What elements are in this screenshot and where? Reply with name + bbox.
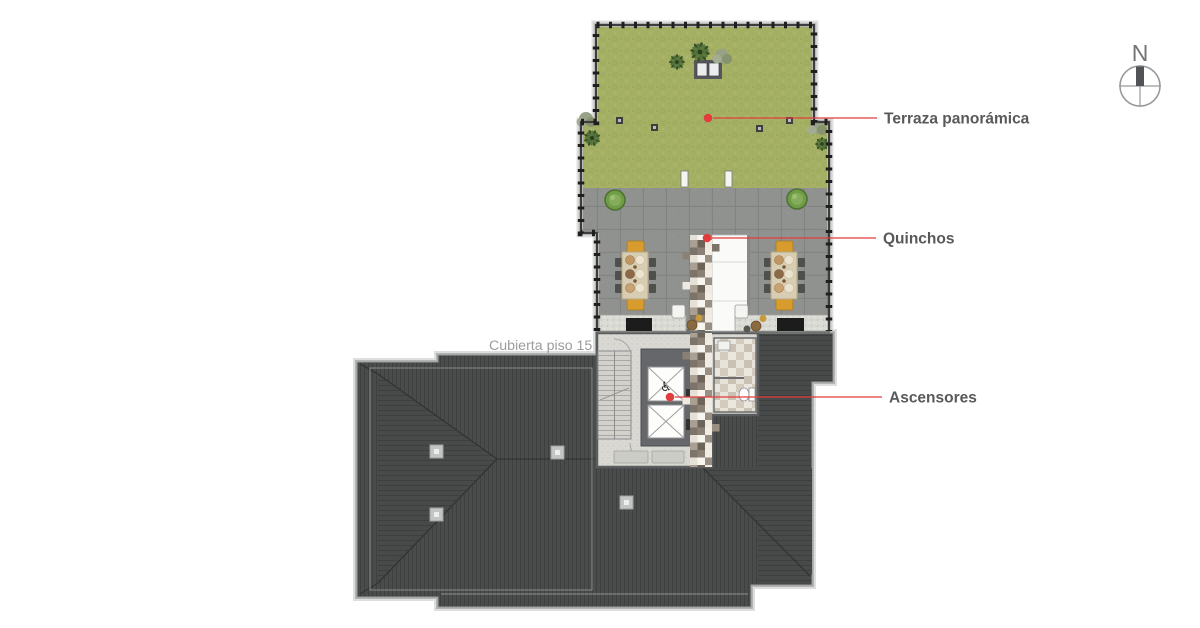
callout-label-quinchos: Quinchos (883, 231, 954, 248)
plate (626, 256, 635, 265)
plate (775, 270, 784, 279)
chair (649, 284, 656, 293)
stool (744, 326, 751, 333)
north-compass-icon: N (1119, 40, 1161, 107)
elevator-car (648, 405, 684, 438)
round-tree-icon (605, 190, 625, 210)
bench (776, 298, 793, 310)
plate (775, 256, 784, 265)
light-fixture (651, 124, 658, 131)
light-fixture (756, 125, 763, 132)
chair (615, 284, 622, 293)
bench (627, 241, 644, 253)
stool (696, 315, 703, 322)
chair (615, 271, 622, 280)
chair (764, 258, 771, 267)
table-item (782, 265, 786, 269)
plate (785, 284, 794, 293)
core-bench (652, 451, 684, 463)
staircase (598, 351, 631, 439)
chair (764, 284, 771, 293)
floor-marker (681, 171, 688, 187)
plate (626, 270, 635, 279)
sink (672, 305, 685, 318)
mosaic-wall-core (690, 333, 712, 467)
plate (785, 256, 794, 265)
terrace-block (577, 25, 831, 333)
plate (636, 270, 645, 279)
callout-dot (666, 393, 675, 402)
mosaic-tile (683, 252, 691, 260)
mosaic-tile (683, 282, 691, 290)
floor-plan-page: ♿ (0, 0, 1200, 628)
toilet (739, 388, 755, 401)
plate (785, 270, 794, 279)
sink (735, 305, 748, 318)
light-fixture (616, 117, 623, 124)
compass-needle (1136, 67, 1144, 87)
callout-label-ascensores: Ascensores (889, 390, 977, 407)
chair (798, 271, 805, 280)
stool (760, 315, 767, 322)
chair (615, 258, 622, 267)
stool (687, 320, 697, 330)
palm-tree-icon (669, 54, 685, 70)
grass-area-wide (583, 122, 827, 188)
table-item (633, 265, 637, 269)
chair (798, 284, 805, 293)
chair (649, 258, 656, 267)
core-bench (614, 451, 648, 463)
callout-dot (703, 234, 712, 243)
roof-vent (430, 508, 443, 521)
floor-marker (725, 171, 732, 187)
roof-vent (430, 445, 443, 458)
chair (649, 271, 656, 280)
roof-vent (620, 496, 633, 509)
chair (764, 271, 771, 280)
plate (626, 284, 635, 293)
chair (798, 258, 805, 267)
bench (776, 241, 793, 253)
grill (626, 318, 652, 331)
bathroom-sink (718, 341, 730, 350)
table-item (782, 279, 786, 283)
plate (775, 284, 784, 293)
bench (627, 298, 644, 310)
table-item (633, 279, 637, 283)
roof-vent (551, 446, 564, 459)
roof-deck (357, 333, 833, 607)
roof-panel-right-upper (758, 334, 832, 381)
bathroom (714, 338, 756, 412)
plate (636, 256, 645, 265)
round-tree-icon (787, 189, 807, 209)
stool (751, 321, 761, 331)
floor-label: Cubierta piso 15 (489, 338, 592, 354)
mosaic-tile (712, 244, 720, 252)
plate (636, 284, 645, 293)
mosaic-tile (683, 352, 691, 360)
mosaic-tile (683, 397, 691, 405)
callout-dot (704, 114, 713, 123)
callout-label-terraza: Terraza panorámica (884, 111, 1030, 128)
north-label: N (1132, 40, 1149, 66)
mosaic-tile (712, 424, 720, 432)
grill (777, 318, 804, 331)
floor-plan-canvas: ♿ (0, 0, 1200, 628)
